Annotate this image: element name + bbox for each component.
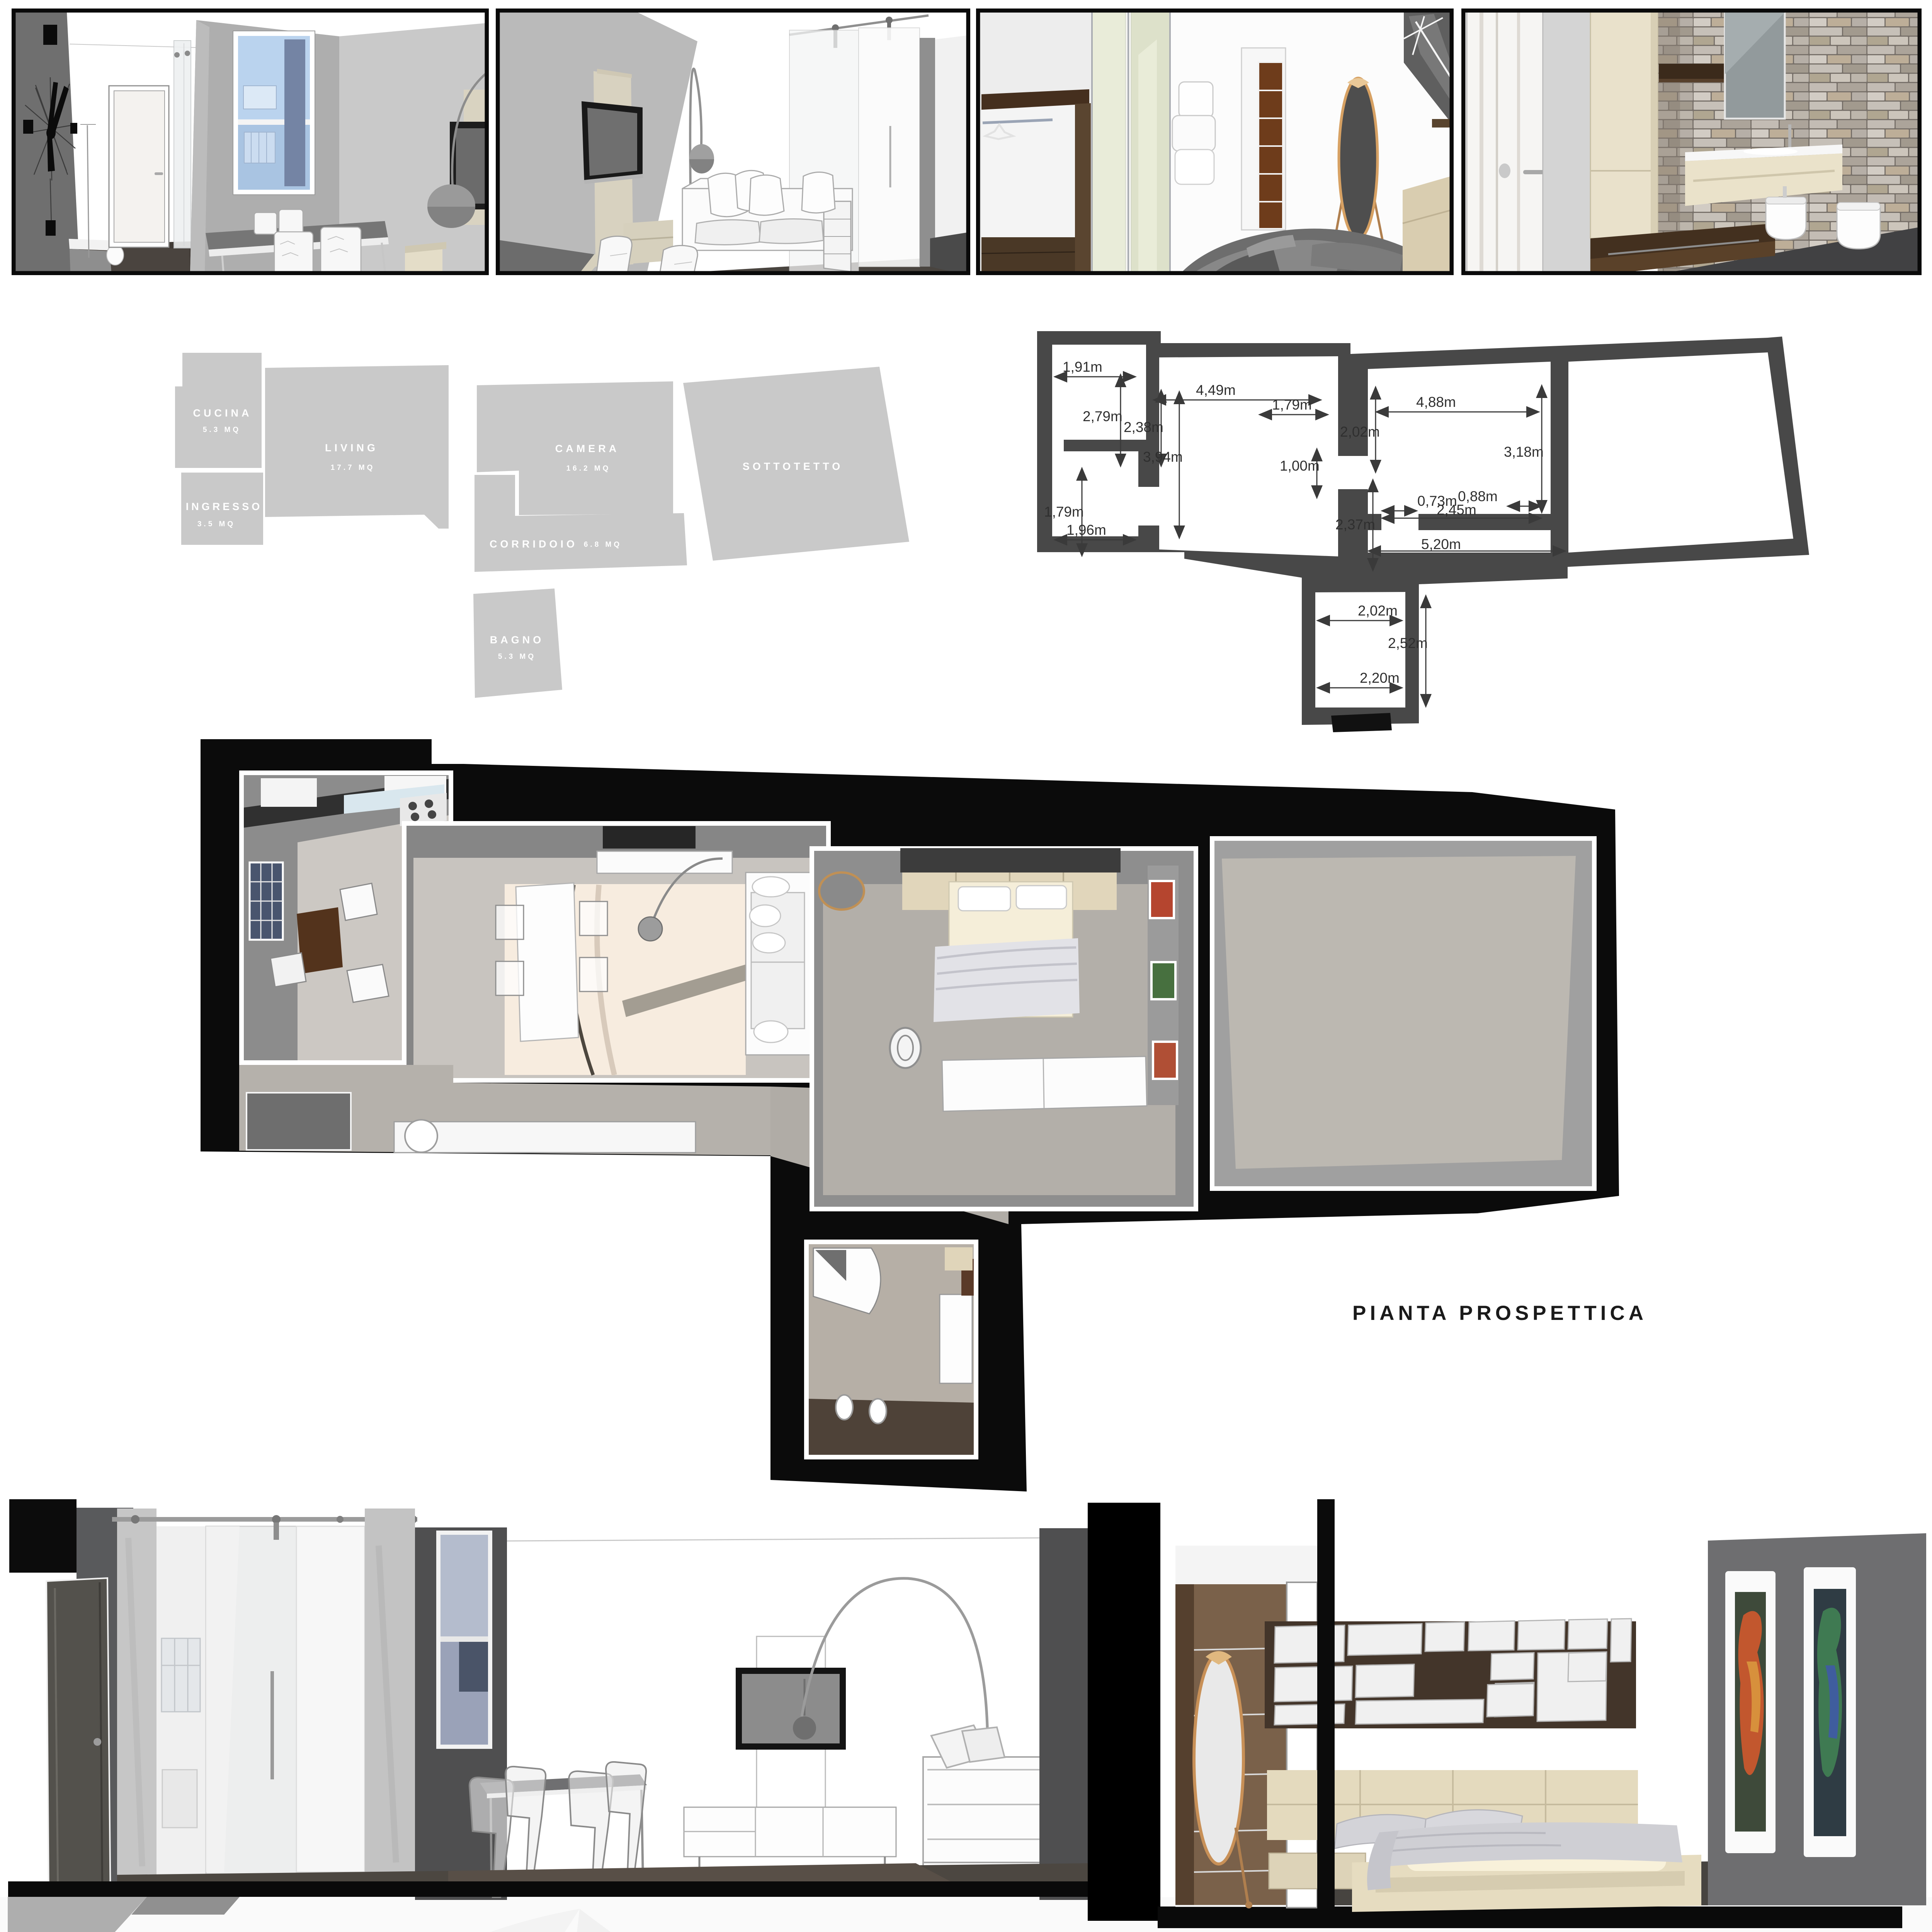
svg-text:BAGNO: BAGNO <box>490 634 544 646</box>
svg-text:4,49m: 4,49m <box>1196 382 1236 398</box>
svg-text:5,20m: 5,20m <box>1421 536 1461 552</box>
svg-text:CUCINA: CUCINA <box>193 407 252 419</box>
svg-text:PIANTA PROSPETTICA: PIANTA PROSPETTICA <box>1352 1302 1647 1325</box>
svg-text:INGRESSO: INGRESSO <box>186 501 263 512</box>
svg-text:CAMERA: CAMERA <box>555 443 620 454</box>
svg-text:1,00m: 1,00m <box>1280 458 1320 474</box>
svg-text:1,79m: 1,79m <box>1044 504 1084 520</box>
svg-text:3,94m: 3,94m <box>1143 449 1183 465</box>
svg-text:3.5 MQ: 3.5 MQ <box>197 520 235 528</box>
svg-text:1,79m: 1,79m <box>1272 397 1312 413</box>
svg-text:2,20m: 2,20m <box>1360 670 1400 686</box>
svg-text:2,37m: 2,37m <box>1335 517 1375 532</box>
svg-text:16.2 MQ: 16.2 MQ <box>566 464 611 473</box>
svg-text:CORRIDOIO: CORRIDOIO <box>490 538 578 550</box>
svg-text:2,02m: 2,02m <box>1340 424 1380 440</box>
svg-text:1,91m: 1,91m <box>1063 359 1102 375</box>
svg-text:2,45m: 2,45m <box>1437 502 1476 518</box>
svg-text:SOTTOTETTO: SOTTOTETTO <box>743 461 844 472</box>
svg-text:17.7 MQ: 17.7 MQ <box>331 464 375 472</box>
svg-text:2,79m: 2,79m <box>1083 408 1122 424</box>
svg-text:2,52m: 2,52m <box>1388 635 1428 651</box>
svg-text:3,18m: 3,18m <box>1504 444 1544 460</box>
svg-text:6.8 MQ: 6.8 MQ <box>584 541 622 549</box>
svg-text:5.3 MQ: 5.3 MQ <box>203 426 241 434</box>
svg-text:LIVING: LIVING <box>325 442 378 454</box>
svg-text:5.3 MQ: 5.3 MQ <box>498 653 536 661</box>
svg-text:4,88m: 4,88m <box>1416 394 1456 410</box>
svg-text:2,02m: 2,02m <box>1358 603 1398 619</box>
svg-text:1,96m: 1,96m <box>1066 522 1106 538</box>
svg-text:2,38m: 2,38m <box>1124 419 1163 435</box>
